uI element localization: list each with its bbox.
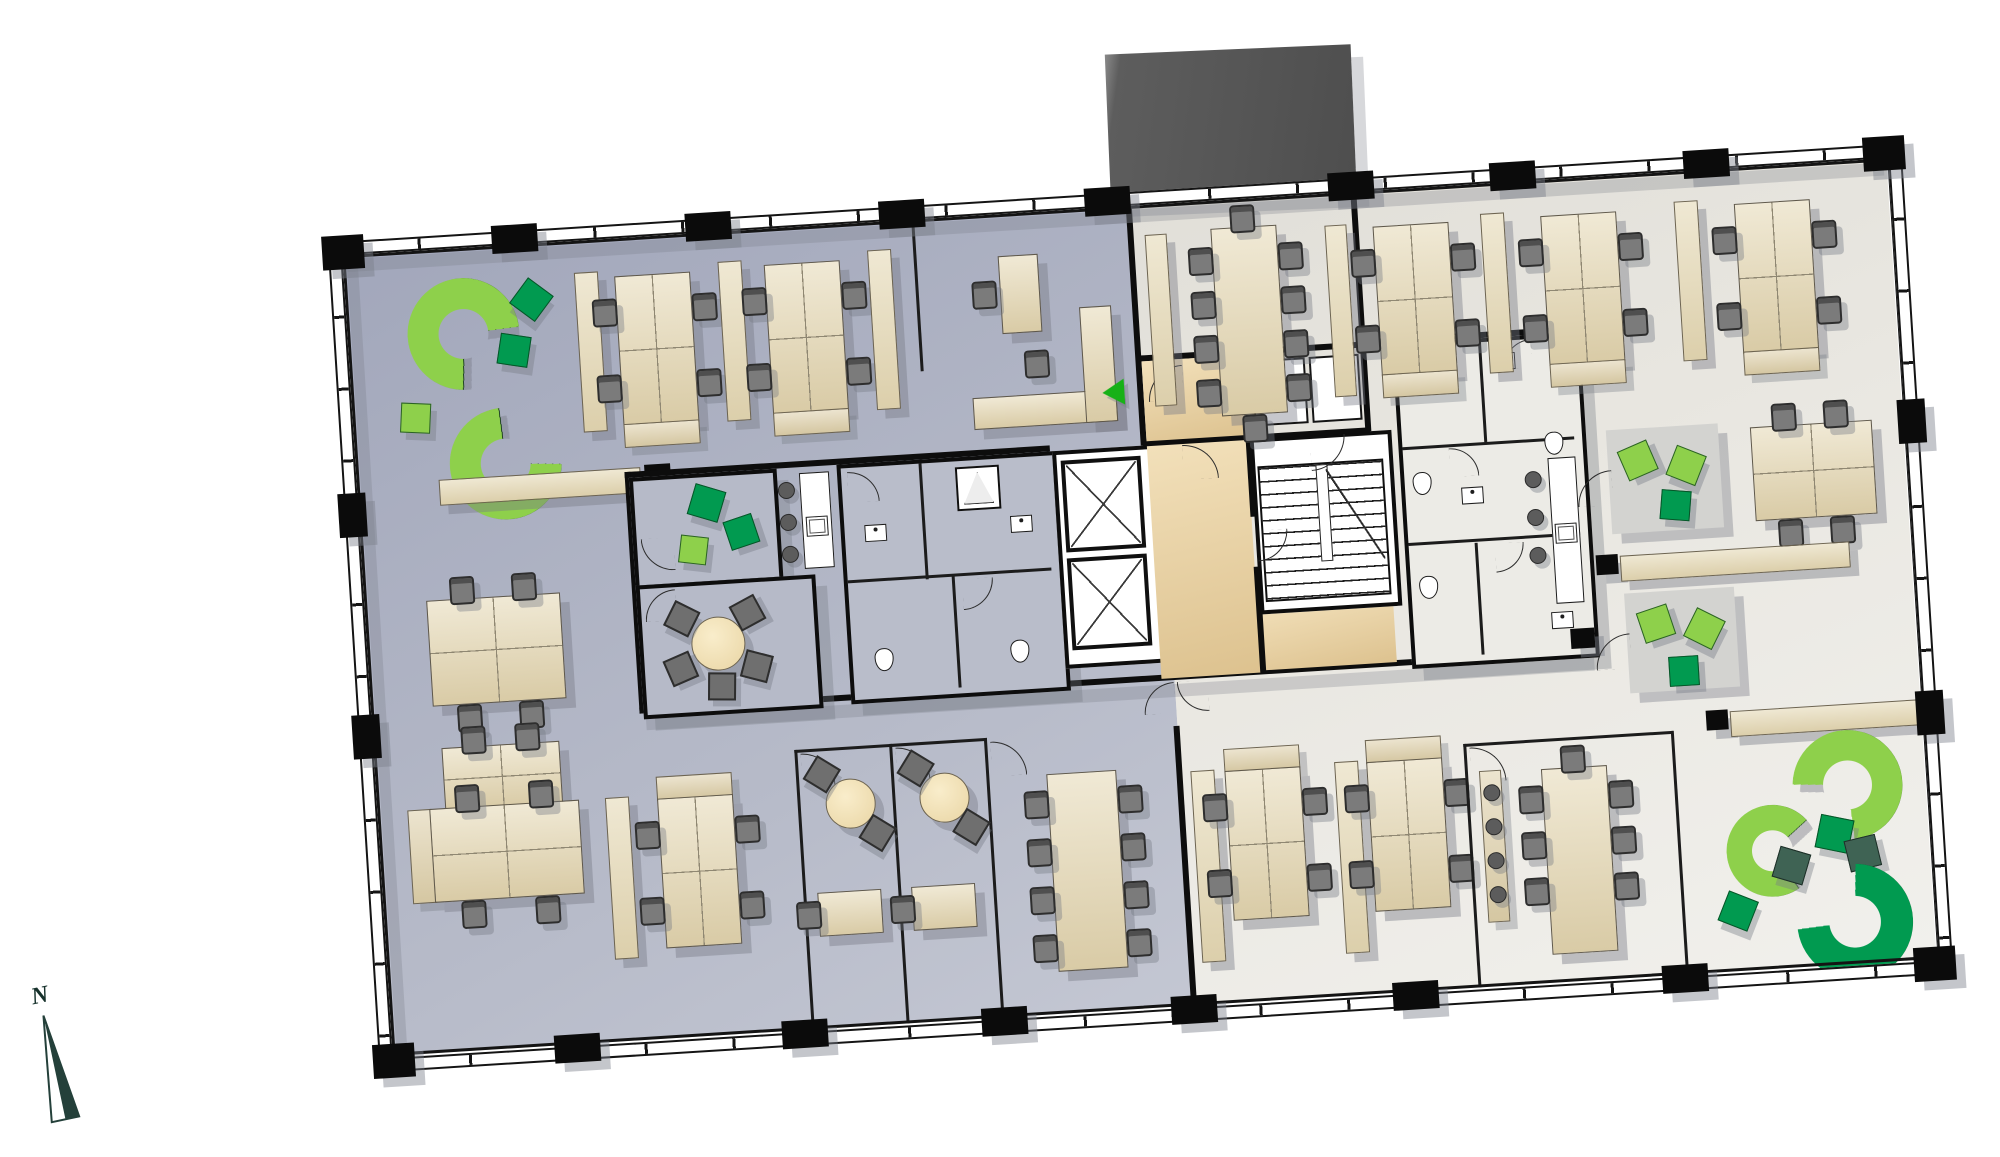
facade-column [351,714,382,760]
facade-column [878,199,926,230]
facade-column [1392,980,1440,1011]
facade-column [337,492,368,538]
facade-column [1662,963,1710,994]
corner-column [1913,946,1957,983]
floor-plan-stage: N [0,0,2000,1157]
north-label: N [29,975,80,1011]
facade-column [1682,148,1730,179]
facade-column [1915,690,1946,736]
facade-column [1170,994,1218,1025]
building-outline [342,158,1940,1056]
facade-column [684,211,732,242]
corner-column [372,1042,416,1079]
corner-column [321,234,365,271]
facade-column [491,223,539,254]
facade-column [981,1006,1029,1037]
facade-column [781,1018,829,1049]
facade-column [1084,186,1132,217]
north-compass: N [15,975,105,1134]
facade-column [554,1033,602,1064]
facade-column [1327,171,1375,202]
corner-column [1862,135,1906,172]
facade-column [1489,160,1537,191]
north-arrow-icon [21,1005,89,1132]
facade-column [1896,398,1927,444]
building-plan [344,160,1936,1055]
